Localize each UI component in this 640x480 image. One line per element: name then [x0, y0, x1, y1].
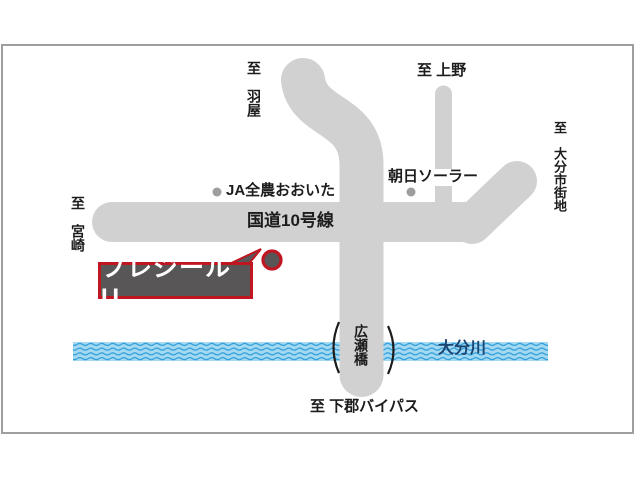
label-to-oita-city: 至 大分市街地	[553, 121, 566, 212]
label-hirose-bridge: 広瀬橋	[354, 324, 368, 366]
label-to-haneya: 至 羽屋	[247, 61, 261, 117]
road-oita-city	[472, 181, 517, 224]
dealer-callout: プレジールU	[98, 262, 253, 299]
map-canvas: 至 羽屋 至 上野 至 大分市街地 至 宮崎 JA全農おおいた 国道10号線 朝…	[0, 0, 640, 480]
label-to-miyazaki: 至 宮崎	[71, 196, 85, 252]
label-oita-river: 大分川	[438, 340, 486, 358]
poi-dot-asahi-solar-icon	[407, 188, 416, 197]
label-route10: 国道10号線	[247, 212, 334, 231]
label-to-ueno: 至 上野	[417, 63, 466, 80]
label-ja-zennoh: JA全農おおいた	[226, 183, 335, 200]
location-marker-icon	[263, 251, 281, 269]
label-to-shimogori-bypass: 至 下郡バイパス	[310, 399, 419, 416]
label-asahi-solar: 朝日ソーラー	[386, 169, 480, 186]
dealer-callout-label: プレジールU	[101, 248, 250, 313]
poi-dot-ja-zennoh-icon	[213, 188, 222, 197]
